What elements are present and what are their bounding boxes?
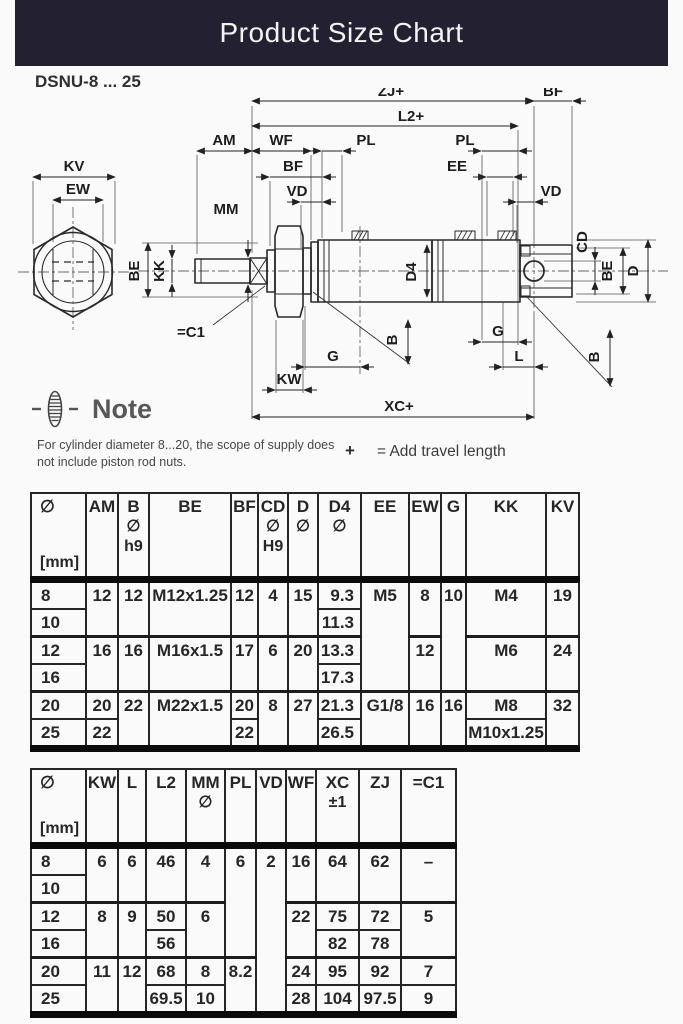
cell-l2: 46 — [146, 846, 186, 903]
cell-b: 22 — [118, 692, 149, 749]
cell-be: M12x1.25 — [149, 580, 231, 637]
table-row: 12 16 16 M16x1.5 17 6 20 13.3 12 M6 24 — [31, 637, 579, 665]
col-header-wf: WF — [286, 769, 316, 846]
cell-c1: – — [401, 846, 456, 903]
cell-dia: 16 — [31, 664, 86, 692]
cell-xc: 75 — [316, 903, 359, 931]
add-travel-note: + = Add travel length — [345, 441, 506, 461]
dim-label-pl-right: PL — [455, 132, 474, 149]
cell-ew: 12 — [409, 637, 441, 692]
cell-dia: 20 — [31, 958, 86, 986]
cell-l2: 68 — [146, 958, 186, 986]
dim-label-xc: XC+ — [384, 398, 414, 415]
dim-label-b-right: B — [586, 351, 603, 362]
cell-b: 16 — [118, 637, 149, 692]
cell-dia: 8 — [31, 580, 86, 610]
cell-wf: 28 — [286, 985, 316, 1015]
cell-wf: 16 — [286, 846, 316, 903]
torque-symbol: =C1 — [413, 773, 445, 793]
dim-label-g-left: G — [327, 348, 339, 365]
dim-label-bf-top: BF — [543, 88, 563, 100]
cell-be: M22x1.5 — [149, 692, 231, 749]
dim-label-l2: L2+ — [398, 108, 425, 125]
cell-d4: 13.3 — [318, 637, 361, 665]
cell-vd: 2 — [256, 846, 286, 1015]
dim-label-ew: EW — [66, 181, 91, 198]
table-row: 8 6 6 46 4 6 2 16 64 62 – — [31, 846, 456, 876]
cell-xc: 95 — [316, 958, 359, 986]
cell-dia: 20 — [31, 692, 86, 720]
cell-mm: 8 — [186, 958, 225, 986]
col-header-dia: ∅[mm] — [31, 769, 86, 846]
cell-zj: 72 — [359, 903, 401, 931]
torque-symbol: =C1 — [177, 324, 205, 341]
col-header-l2: L2 — [146, 769, 186, 846]
cell-g: 10 — [441, 580, 466, 692]
cell-d: 20 — [288, 637, 318, 692]
note-heading: Note — [30, 388, 152, 430]
col-header-d: D∅ — [288, 493, 318, 580]
col-header-bf: BF — [231, 493, 258, 580]
note-text: For cylinder diameter 8...20, the scope … — [37, 437, 337, 470]
cell-dia: 10 — [31, 609, 86, 637]
cell-dia: 16 — [31, 930, 86, 958]
cell-zj: 78 — [359, 930, 401, 958]
cell-kk: M10x1.25 — [466, 719, 546, 749]
dim-label-wf: WF — [269, 132, 292, 149]
dim-label-cd: CD — [574, 231, 591, 253]
cell-g: 16 — [441, 692, 466, 749]
centerlines — [18, 207, 668, 374]
cell-zj: 62 — [359, 846, 401, 903]
cell-cd: 6 — [258, 637, 288, 692]
cell-d: 27 — [288, 692, 318, 749]
cell-dia: 25 — [31, 985, 86, 1015]
dimension-lines — [33, 101, 648, 417]
col-header-kw: KW — [86, 769, 118, 846]
dim-label-vd-left: VD — [287, 183, 308, 200]
col-header-ee: EE — [361, 493, 409, 580]
cell-zj: 92 — [359, 958, 401, 986]
cell-mm: 4 — [186, 846, 225, 903]
cell-c1: 9 — [401, 985, 456, 1015]
cell-b: 12 — [118, 580, 149, 637]
cell-l: 9 — [118, 903, 146, 958]
cell-xc: 82 — [316, 930, 359, 958]
cell-d4: 26.5 — [318, 719, 361, 749]
dim-label-zj: ZJ+ — [378, 88, 405, 100]
cell-dia: 12 — [31, 637, 86, 665]
cell-l2: 69.5 — [146, 985, 186, 1015]
cell-kw: 8 — [86, 903, 118, 958]
col-header-ew: EW — [409, 493, 441, 580]
cell-kv: 24 — [546, 637, 579, 692]
page-title: Product Size Chart — [220, 17, 464, 49]
col-header-kk: KK — [466, 493, 546, 580]
dim-label-d4: D4 — [403, 262, 420, 282]
cell-kw: 11 — [86, 958, 118, 1015]
dim-label-mm: MM — [214, 201, 239, 218]
cell-c1: 5 — [401, 903, 456, 958]
dimension-table-1: ∅[mm] AM B∅h9 BE BF CD∅H9 D∅ D4∅ EE EW G… — [30, 492, 580, 752]
col-header-am: AM — [86, 493, 118, 580]
cell-d4: 11.3 — [318, 609, 361, 637]
cell-mm: 6 — [186, 903, 225, 958]
dimension-diagram: ZJ+ BF L2+ AM WF PL PL BF EE VD VD KV EW… — [0, 88, 683, 432]
cell-bf: 12 — [231, 580, 258, 637]
dim-label-bf-left: BF — [283, 158, 303, 175]
dimension-table-2: ∅[mm] KW L L2 MM∅ PL VD WF XC±1 ZJ =C1 8… — [30, 768, 457, 1018]
cell-bf: 17 — [231, 637, 258, 692]
cell-ew: 16 — [409, 692, 441, 749]
cell-cd: 4 — [258, 580, 288, 637]
note-title: Note — [92, 394, 152, 425]
cell-d4: 17.3 — [318, 664, 361, 692]
title-bar: Product Size Chart — [15, 0, 668, 66]
cell-am: 22 — [86, 719, 118, 749]
col-header-g: G — [441, 493, 466, 580]
cell-l: 12 — [118, 958, 146, 1015]
col-header-cd: CD∅H9 — [258, 493, 288, 580]
cylinder-drawing — [34, 226, 573, 317]
cell-dia: 12 — [31, 903, 86, 931]
col-header-pl: PL — [225, 769, 256, 846]
cell-ee: M5 — [361, 580, 409, 692]
cell-l2: 50 — [146, 903, 186, 931]
cell-kv: 32 — [546, 692, 579, 749]
dim-label-g-right: G — [492, 323, 504, 340]
table-row: 20 11 12 68 8 8.2 24 95 92 7 — [31, 958, 456, 986]
dim-label-kk: KK — [151, 260, 168, 282]
cell-mm: 10 — [186, 985, 225, 1015]
table-row: 8 12 12 M12x1.25 12 4 15 9.3 M5 8 10 M4 … — [31, 580, 579, 610]
cell-c1: 7 — [401, 958, 456, 986]
cell-am: 20 — [86, 692, 118, 720]
col-header-d4: D4∅ — [318, 493, 361, 580]
col-header-dia: ∅[mm] — [31, 493, 86, 580]
cell-kv: 19 — [546, 580, 579, 637]
col-header-be: BE — [149, 493, 231, 580]
add-travel-text: = Add travel length — [377, 443, 506, 461]
col-header-torque: =C1 — [401, 769, 456, 846]
cell-dia: 25 — [31, 719, 86, 749]
cell-d4: 21.3 — [318, 692, 361, 720]
note-icon — [30, 388, 80, 430]
cell-wf: 22 — [286, 903, 316, 958]
dim-label-be-right: BE — [599, 261, 616, 282]
cell-zj: 97.5 — [359, 985, 401, 1015]
col-header-b: B∅h9 — [118, 493, 149, 580]
cell-kk: M4 — [466, 580, 546, 637]
dim-label-d: D — [625, 265, 642, 276]
cell-bf: 20 — [231, 692, 258, 720]
dim-label-am: AM — [212, 132, 235, 149]
plus-sign: + — [345, 441, 355, 461]
cell-be: M16x1.5 — [149, 637, 231, 692]
cell-ee: G1/8 — [361, 692, 409, 749]
cell-ew: 8 — [409, 580, 441, 637]
cell-pl: 8.2 — [225, 958, 256, 1015]
cell-am: 12 — [86, 580, 118, 637]
cell-cd: 8 — [258, 692, 288, 749]
dim-label-b-left: B — [384, 334, 401, 345]
table-row: 20 20 22 M22x1.5 20 8 27 21.3 G1/8 16 16… — [31, 692, 579, 720]
cell-d: 15 — [288, 580, 318, 637]
cell-l2: 56 — [146, 930, 186, 958]
col-header-vd: VD — [256, 769, 286, 846]
dim-label-vd-right: VD — [541, 183, 562, 200]
dim-label-be-left: BE — [126, 261, 143, 282]
col-header-kv: KV — [546, 493, 579, 580]
col-header-zj: ZJ — [359, 769, 401, 846]
cell-kk: M8 — [466, 692, 546, 720]
cell-dia: 10 — [31, 875, 86, 903]
page: Product Size Chart DSNU-8 ... 25 — [0, 0, 683, 1024]
cell-kk: M6 — [466, 637, 546, 692]
col-header-xc: XC±1 — [316, 769, 359, 846]
col-header-mm: MM∅ — [186, 769, 225, 846]
cell-xc: 64 — [316, 846, 359, 903]
dim-label-kw: KW — [277, 371, 303, 388]
cell-dia: 8 — [31, 846, 86, 876]
col-header-l: L — [118, 769, 146, 846]
cell-am: 16 — [86, 637, 118, 692]
cell-xc: 104 — [316, 985, 359, 1015]
dim-label-ee: EE — [447, 158, 467, 175]
dim-label-pl-left: PL — [356, 132, 375, 149]
cell-kw: 6 — [86, 846, 118, 903]
cell-l: 6 — [118, 846, 146, 903]
cell-bf: 22 — [231, 719, 258, 749]
cell-d4: 9.3 — [318, 580, 361, 610]
cell-wf: 24 — [286, 958, 316, 986]
dim-label-kv: KV — [64, 158, 85, 175]
dim-label-l: L — [514, 348, 523, 365]
cell-pl: 6 — [225, 846, 256, 958]
